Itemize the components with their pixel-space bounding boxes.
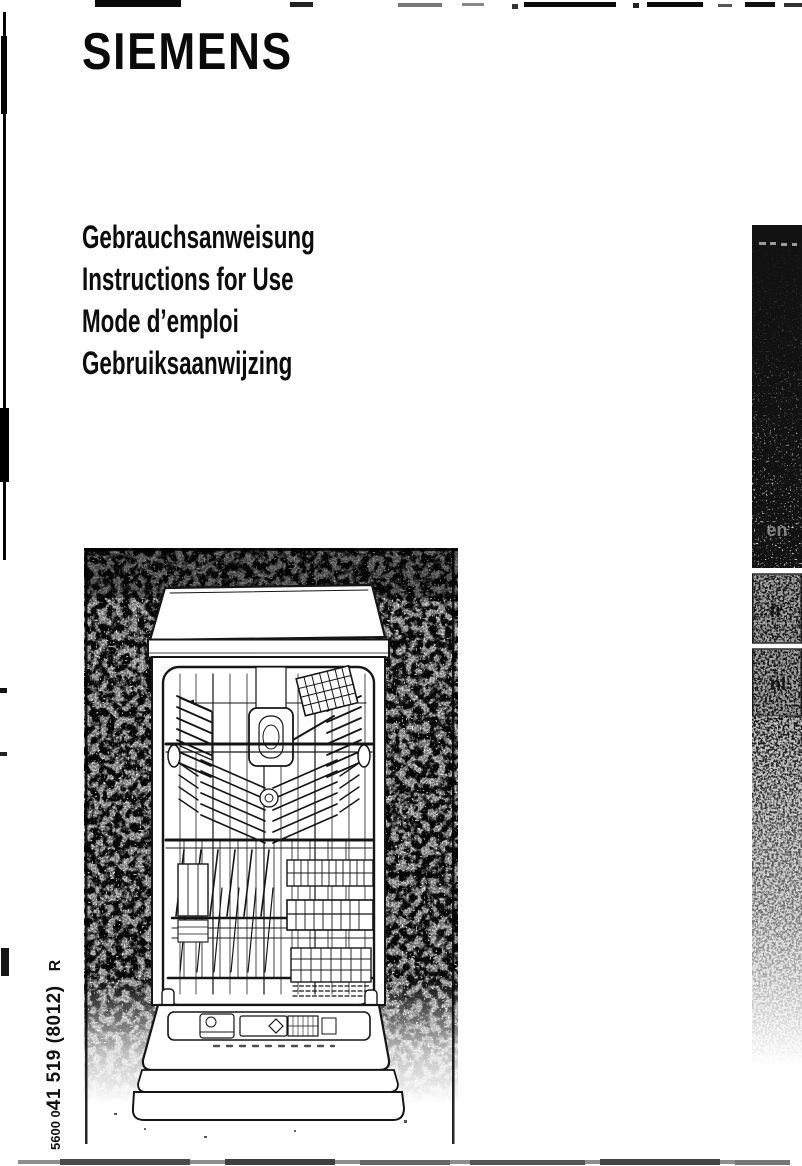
title-german: Gebrauchsanweisung [82, 216, 315, 258]
title-dutch: Gebruiksaanwijzing [82, 342, 315, 384]
cutlery-basket [287, 860, 373, 996]
lang-tab-en-label: en [766, 520, 787, 540]
tab-nl: nl [753, 649, 802, 716]
document-number: 5600 041 519 (8012)R [44, 960, 66, 1150]
dishwasher-illustration [84, 548, 458, 1146]
detergent-dispenser [200, 1014, 336, 1038]
strip-fade-tail [752, 716, 802, 1066]
open-door [133, 1005, 404, 1120]
water-feed-tube [249, 667, 293, 766]
doc-number-revision: R [47, 960, 64, 972]
title-block: Gebrauchsanweisung Instructions for Use … [82, 216, 415, 384]
language-tab-strip: en fr nl [752, 225, 802, 1066]
doc-number-prefix: 5600 0 [48, 1110, 63, 1150]
doc-number-main: 41 519 (8012) [44, 985, 65, 1110]
tab-en: en [752, 225, 802, 568]
tab-fr: fr [753, 574, 802, 643]
lang-tab-nl-label: nl [770, 674, 786, 694]
title-english: Instructions for Use [82, 258, 315, 300]
brand-logo: SIEMENS [82, 26, 293, 78]
manual-cover-page: SIEMENS Gebrauchsanweisung Instructions … [0, 0, 802, 1166]
lang-tab-fr-label: fr [770, 601, 783, 621]
basket-handle [178, 864, 208, 942]
title-french: Mode d’emploi [82, 300, 315, 342]
dishwasher-photo [84, 548, 458, 1146]
dishwasher-drawing [133, 585, 404, 1120]
scan-artifact-bottom-bar [0, 1157, 802, 1166]
